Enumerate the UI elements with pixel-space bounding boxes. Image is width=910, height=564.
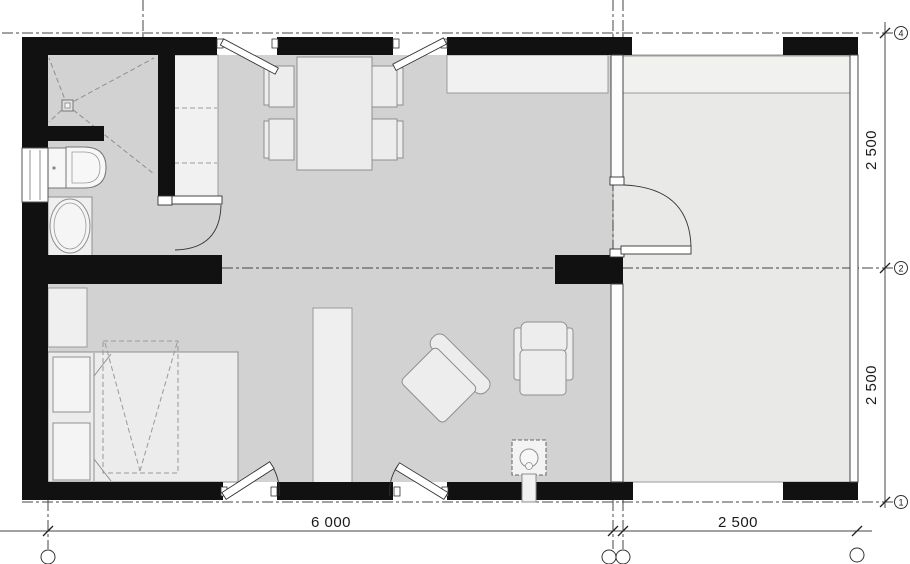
toilet-tank	[48, 148, 66, 188]
stove-fireplace	[512, 440, 546, 475]
tall-cabinet-body	[173, 55, 218, 198]
interior-wall-shower-stub	[22, 126, 104, 141]
grid-marker-right-top: 4	[895, 27, 908, 40]
toilet	[48, 147, 106, 188]
window-jamb	[393, 39, 399, 48]
terrace-wall-top	[783, 37, 858, 55]
dining-chair	[372, 66, 397, 107]
grid-marker-circle	[602, 550, 616, 564]
wardrobe	[48, 288, 87, 347]
grid-marker-label: 4	[898, 29, 903, 39]
interior-wall-bathroom	[158, 55, 175, 198]
kitchen-counter	[447, 55, 608, 93]
window-left-wall	[22, 148, 48, 202]
floor-drain-grate	[65, 103, 70, 108]
washbasin	[48, 197, 92, 256]
dining-chair	[269, 119, 294, 160]
grid-marker-circle	[850, 548, 864, 562]
grid-marker-right-bottom: 1	[895, 496, 908, 509]
pillow	[53, 423, 90, 480]
shelf-unit	[313, 308, 352, 483]
grid-marker-circle	[41, 550, 55, 564]
interior-wall-divider-right	[555, 255, 623, 284]
terrace-wall-bottom	[783, 482, 858, 500]
grid-marker-label: 1	[898, 498, 903, 508]
armchair-back	[521, 322, 567, 352]
chair-backrest	[397, 68, 403, 105]
basin-outer	[50, 199, 90, 253]
grid-marker-label: 2	[898, 264, 903, 274]
exterior-wall-top	[447, 37, 632, 55]
glazed-partition-upper	[611, 55, 623, 178]
chair-backrest	[397, 121, 403, 158]
door-jamb	[394, 487, 400, 496]
exterior-wall-bottom	[277, 482, 393, 500]
armchair	[514, 322, 573, 395]
armchair-seat	[520, 350, 566, 395]
door-jamb	[271, 487, 277, 496]
dining-chair	[372, 119, 397, 160]
floor-plan-drawing: 6 000 2 500 2 500 2 500 4 2 1	[0, 0, 910, 564]
grid-markers-bottom	[41, 548, 864, 564]
exterior-wall-bottom	[447, 482, 633, 500]
door-jamb	[158, 196, 172, 205]
exterior-wall-bottom	[22, 482, 223, 500]
dining-table	[297, 57, 372, 170]
toilet-flush-dot	[52, 166, 55, 169]
interior-wall-divider-left	[22, 255, 222, 284]
pillow	[53, 357, 90, 412]
dimension-label-2500-right-upper: 2 500	[863, 130, 880, 170]
door-jamb	[610, 177, 624, 185]
door-leaf	[621, 246, 691, 254]
floor-plan-canvas: 6 000 2 500 2 500 2 500 4 2 1	[0, 0, 910, 564]
kitchen-tall-cabinet	[173, 55, 218, 198]
terrace-bench	[623, 56, 853, 93]
dimension-label-2500-right-lower: 2 500	[863, 365, 880, 405]
grid-marker-right-mid: 2	[895, 262, 908, 275]
window-frame	[22, 148, 48, 202]
dimension-label-6000: 6 000	[311, 514, 351, 531]
grid-marker-circle	[616, 550, 630, 564]
window-jamb	[272, 39, 278, 48]
exterior-wall-top	[277, 37, 393, 55]
glazed-partition-lower	[611, 284, 623, 482]
terrace-edge-wall	[850, 55, 858, 482]
exterior-wall-left	[22, 202, 48, 500]
stove-flue	[522, 474, 536, 502]
exterior-wall-top	[22, 37, 217, 55]
dimension-label-2500-bottom: 2 500	[718, 514, 758, 531]
stove-flue-joint	[526, 463, 533, 470]
door-leaf	[172, 196, 222, 204]
